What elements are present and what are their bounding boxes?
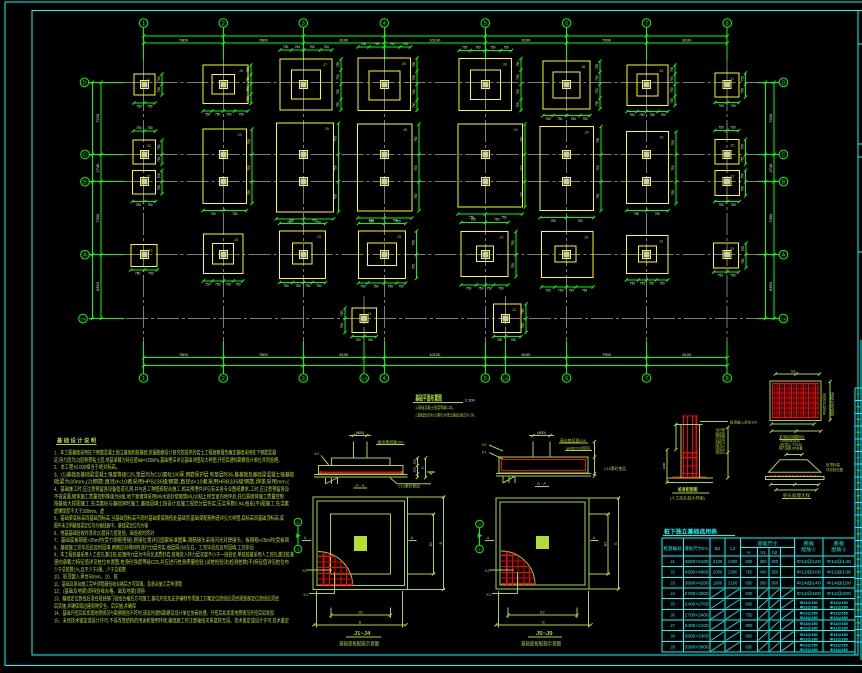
- svg-text:750: 750: [283, 45, 289, 49]
- svg-text:B: B: [83, 180, 87, 186]
- svg-text:图中未注明基础梁定位均为轴线居中。基础梁定位均为轴: 图中未注明基础梁定位均为轴线居中。基础梁定位均为轴: [54, 522, 148, 530]
- svg-text:J8: J8: [670, 634, 675, 639]
- svg-text:C: C: [83, 152, 87, 158]
- svg-text:750: 750: [336, 62, 340, 68]
- svg-text:J4: J4: [670, 591, 675, 596]
- svg-text:750: 750: [501, 216, 507, 220]
- svg-text:750: 750: [414, 136, 418, 142]
- svg-text:750: 750: [136, 126, 142, 130]
- svg-text:750: 750: [157, 144, 161, 150]
- svg-text:B2: B2: [540, 611, 544, 615]
- svg-text:750: 750: [730, 104, 736, 108]
- svg-text:750: 750: [745, 570, 753, 575]
- svg-text:750: 750: [340, 310, 344, 316]
- svg-text:11、基础及承台施工完毕须隐蔽验收合格后方可回填。及承台施工: 11、基础及承台施工完毕须隐蔽验收合格后方可回填。及承台施工完毕须隐: [54, 580, 182, 588]
- svg-text:750: 750: [516, 74, 520, 80]
- svg-text:750: 750: [389, 42, 395, 46]
- svg-text:(600): (600): [356, 431, 364, 435]
- svg-text:750: 750: [466, 287, 472, 291]
- svg-text:750: 750: [596, 193, 600, 199]
- svg-text:750: 750: [582, 117, 588, 121]
- svg-text:3、(1)基础及基础梁混凝土强度等级C25,垫层均为C10素: 3、(1)基础及基础梁混凝土强度等级C25,垫层均为C10素砼100厚,钢筋保护…: [54, 470, 294, 478]
- svg-text:750: 750: [516, 89, 520, 95]
- svg-text:750: 750: [557, 117, 563, 121]
- svg-text:4: 4: [383, 21, 386, 27]
- svg-text:钢筋网片两层: 钢筋网片两层: [830, 391, 835, 416]
- svg-text:3600×4200: 3600×4200: [685, 580, 710, 585]
- svg-text:D: D: [83, 80, 87, 86]
- svg-text:8100: 8100: [339, 38, 349, 43]
- svg-text:750: 750: [745, 612, 753, 617]
- svg-text:750: 750: [324, 45, 330, 49]
- svg-text:B2: B2: [715, 546, 721, 551]
- svg-text:750: 750: [205, 113, 211, 117]
- svg-text:750: 750: [660, 113, 666, 117]
- svg-text:400: 400: [760, 570, 768, 575]
- svg-text:C10素砼垫层: C10素砼垫层: [398, 483, 420, 488]
- svg-text:J1~J4: J1~J4: [354, 631, 371, 637]
- svg-text:2、本工程±0.000相当于绝对标高。: 2、本工程±0.000相当于绝对标高。: [54, 463, 120, 471]
- svg-text:750: 750: [247, 190, 251, 196]
- svg-text:K1: K1: [482, 451, 487, 455]
- svg-text:7: 7: [645, 376, 648, 382]
- svg-text:750: 750: [595, 75, 599, 81]
- svg-text:650: 650: [745, 580, 753, 585]
- svg-text:J7: J7: [670, 623, 675, 628]
- svg-text:Φ12@180: Φ12@180: [830, 647, 848, 652]
- svg-text:750: 750: [670, 76, 674, 82]
- svg-text:750: 750: [741, 258, 745, 264]
- svg-text:750: 750: [511, 240, 515, 246]
- svg-text:350: 350: [771, 570, 779, 575]
- svg-text:φ8@200双向: φ8@200双向: [566, 445, 590, 450]
- svg-text:750: 750: [595, 64, 599, 70]
- svg-text:网片间距100布置: 网片间距100布置: [779, 446, 803, 451]
- svg-text:750: 750: [283, 284, 289, 288]
- svg-text:K1: K1: [487, 593, 492, 597]
- svg-text:8100: 8100: [521, 38, 531, 43]
- svg-text:750: 750: [521, 308, 525, 314]
- svg-text:A: A: [411, 536, 414, 540]
- svg-text:13、基础定位放线后须经规划部门验线合格后方可施工,基坑开挖: 13、基础定位放线后须经规划部门验线合格后方可施工,基坑开挖及支护编制专项施工方…: [54, 595, 279, 603]
- svg-text:7800: 7800: [259, 38, 269, 43]
- svg-text:750: 750: [595, 88, 599, 94]
- svg-text:750: 750: [334, 194, 338, 200]
- svg-text:750: 750: [388, 285, 394, 289]
- svg-text:750: 750: [246, 77, 250, 83]
- svg-text:750: 750: [730, 126, 736, 130]
- svg-text:2100: 2100: [713, 559, 723, 564]
- svg-text:2740: 2740: [768, 163, 773, 173]
- svg-text:750: 750: [246, 67, 250, 73]
- svg-text:650: 650: [745, 644, 753, 649]
- svg-text:750: 750: [478, 287, 484, 291]
- svg-text:不得遗漏,砌体施工质量控制等级为B级,地下室墙体采用M5水泥: 不得遗漏,砌体施工质量控制等级为B级,地下室墙体采用M5水泥砂浆砌筑MU10粘土…: [54, 492, 284, 500]
- svg-text:750: 750: [135, 272, 141, 276]
- svg-text:750: 750: [355, 338, 361, 342]
- svg-text:750: 750: [470, 218, 476, 222]
- svg-text:14、基础开挖后如发现地质情况与勘察报告不符时,请及时通知勘: 14、基础开挖后如发现地质情况与勘察报告不符时,请及时通知勘察及设计单位协商处理…: [54, 609, 274, 617]
- svg-text:2: 2: [222, 376, 225, 382]
- svg-text:750: 750: [577, 219, 583, 223]
- svg-text:K2: K2: [485, 569, 490, 573]
- svg-text:桩基编号: 桩基编号: [664, 545, 682, 552]
- svg-text:B2: B2: [429, 542, 433, 546]
- svg-text:750: 750: [630, 282, 636, 286]
- svg-text:5、基础梁底标高同基础顶标高,当基础顶标高不同时基础梁底随低: 5、基础梁底标高同基础顶标高,当基础顶标高不同时基础梁底随低处基础顶,基础梁配筋…: [54, 514, 284, 522]
- svg-text:750: 750: [520, 165, 524, 171]
- svg-text:300: 300: [771, 559, 779, 564]
- svg-text:15、未经技术鉴定或设计许可,不得改变结构的用途和使用环境,: 15、未经技术鉴定或设计许可,不得改变结构的用途和使用环境,基础施工时注意轴线关…: [54, 616, 289, 624]
- svg-text:配筋①: 配筋①: [801, 546, 816, 553]
- svg-text:750: 750: [148, 272, 154, 276]
- svg-text:750: 750: [639, 113, 645, 117]
- svg-text:D: D: [478, 523, 481, 527]
- svg-text:底板: 底板: [833, 540, 844, 547]
- svg-text:础梁为30mm,(2)钢筋:直径d<10者采用HPB235级: 础梁为30mm,(2)钢筋:直径d<10者采用HPB235级钢筋,直径d>10者…: [54, 478, 289, 486]
- svg-text:750: 750: [670, 67, 674, 73]
- svg-text:750: 750: [247, 139, 251, 145]
- svg-text:750: 750: [157, 173, 161, 179]
- svg-text:Φ12@180: Φ12@180: [800, 615, 818, 620]
- svg-text:750: 750: [246, 96, 250, 102]
- svg-text:750: 750: [634, 212, 640, 216]
- svg-text:750: 750: [334, 165, 338, 171]
- svg-text:10100: 10100: [429, 38, 441, 43]
- svg-text:250: 250: [412, 467, 416, 472]
- svg-text:750: 750: [412, 75, 416, 81]
- svg-text:750: 750: [596, 165, 600, 171]
- svg-text:750: 750: [475, 46, 481, 50]
- svg-text:750: 750: [520, 192, 524, 198]
- svg-text:750: 750: [334, 136, 338, 142]
- svg-text:750: 750: [361, 42, 367, 46]
- svg-text:750: 750: [596, 138, 600, 144]
- svg-text:2400: 2400: [728, 559, 738, 564]
- svg-text:750: 750: [412, 62, 416, 68]
- svg-text:750: 750: [741, 173, 745, 179]
- svg-text:750: 750: [147, 126, 153, 130]
- svg-text:6: 6: [565, 21, 568, 27]
- svg-text:6390: 6390: [95, 281, 100, 291]
- svg-text:750: 750: [595, 101, 599, 107]
- svg-text:750: 750: [545, 117, 551, 121]
- svg-text:750: 750: [412, 89, 416, 95]
- svg-text:2100: 2100: [728, 580, 738, 585]
- svg-text:750: 750: [239, 113, 245, 117]
- svg-text:B2: B2: [358, 611, 362, 615]
- svg-text:750: 750: [730, 274, 736, 278]
- svg-text:750: 750: [336, 89, 340, 95]
- svg-text:1800: 1800: [713, 580, 723, 585]
- svg-text:5: 5: [484, 376, 487, 382]
- svg-text:2000: 2000: [713, 570, 723, 575]
- svg-text:750: 750: [369, 219, 375, 223]
- svg-text:750: 750: [718, 126, 724, 130]
- svg-text:h1: h1: [761, 550, 767, 555]
- svg-text:D: D: [297, 521, 300, 525]
- svg-text:Φ14@150: Φ14@150: [827, 580, 852, 585]
- svg-text:1/5: 1/5: [503, 376, 509, 381]
- svg-text:3600×3300: 3600×3300: [685, 634, 710, 639]
- svg-text:桩顶嵌入承台100: 桩顶嵌入承台100: [730, 419, 757, 424]
- svg-text:A: A: [782, 253, 786, 259]
- svg-text:750: 750: [511, 338, 517, 342]
- svg-text:2700×2400: 2700×2400: [685, 612, 710, 617]
- svg-text:750: 750: [157, 185, 161, 191]
- svg-text:Φ12@180: Φ12@180: [830, 626, 848, 631]
- svg-text:750: 750: [462, 46, 468, 50]
- svg-text:750: 750: [516, 102, 520, 108]
- svg-text:2.基础垫层均为C10素砼100厚,出基础边每边50-100: 2.基础垫层均为C10素砼100厚,出基础边每边50-100。: [415, 411, 476, 418]
- svg-text:8100: 8100: [682, 38, 692, 43]
- svg-text:750: 750: [551, 219, 557, 223]
- svg-text:1: 1: [142, 376, 145, 382]
- svg-text:10、桩顶嵌入承台50mm。10、桩: 10、桩顶嵌入承台50mm。10、桩: [54, 573, 118, 581]
- svg-text:K2: K2: [482, 443, 487, 447]
- svg-text:300: 300: [412, 459, 416, 464]
- svg-text:8: 8: [726, 21, 729, 27]
- svg-text:750: 750: [520, 136, 524, 142]
- svg-text:750: 750: [412, 240, 416, 246]
- svg-text:750: 750: [487, 287, 493, 291]
- svg-text:J9: J9: [670, 644, 675, 649]
- svg-text:750: 750: [671, 140, 675, 146]
- svg-text:4: 4: [383, 376, 386, 382]
- svg-text:8100: 8100: [682, 352, 692, 357]
- svg-text:900: 900: [745, 623, 753, 628]
- svg-text:650: 650: [745, 559, 753, 564]
- svg-text:B: B: [782, 180, 786, 186]
- svg-text:8、基础施工完毕后应及时回填,两侧应对称同时进行分层夯实,每: 8、基础施工完毕后应及时回填,两侧应对称同时进行分层夯实,每层厚250左右。工完…: [54, 543, 254, 551]
- svg-text:A - A: A - A: [537, 481, 546, 486]
- svg-text:650: 650: [745, 602, 753, 607]
- svg-text:750: 750: [398, 285, 404, 289]
- svg-text:J3: J3: [670, 580, 675, 585]
- svg-text:750: 750: [235, 283, 241, 287]
- svg-text:1200: 1200: [662, 462, 666, 469]
- svg-text:A: A: [304, 536, 307, 540]
- svg-text:1: 1: [142, 21, 145, 27]
- svg-text:H: H: [747, 550, 750, 555]
- svg-text:Φ12@140: Φ12@140: [827, 559, 852, 564]
- svg-text:高出垫层面100: 高出垫层面100: [560, 438, 586, 443]
- svg-text:1:100: 1:100: [465, 398, 476, 403]
- svg-text:基础底板配筋示意图: 基础底板配筋示意图: [339, 640, 379, 647]
- svg-text:1/A: 1/A: [80, 318, 86, 322]
- svg-text:Φ12@180: Φ12@180: [800, 626, 818, 631]
- svg-text:750: 750: [157, 87, 161, 93]
- svg-text:750: 750: [503, 46, 509, 50]
- svg-text:8100: 8100: [339, 352, 349, 357]
- svg-text:750: 750: [649, 282, 655, 286]
- svg-text:750: 750: [137, 105, 143, 109]
- svg-text:750: 750: [226, 113, 232, 117]
- svg-text:750: 750: [360, 285, 366, 289]
- svg-text:4200×4800: 4200×4800: [685, 570, 710, 575]
- svg-text:Φ12@180: Φ12@180: [800, 647, 818, 652]
- svg-text:底板尺寸B×L: 底板尺寸B×L: [685, 545, 709, 552]
- svg-text:桩头处理大样: 桩头处理大样: [783, 492, 811, 499]
- svg-text:Φ12@180: Φ12@180: [830, 615, 848, 620]
- svg-text:3300×3600: 3300×3600: [685, 644, 710, 649]
- svg-text:750: 750: [741, 246, 745, 252]
- svg-text:5: 5: [484, 21, 487, 27]
- svg-text:后实施,并确保周边建筑物安全。后实施,并确保: 后实施,并确保周边建筑物安全。后实施,并确保: [54, 602, 136, 610]
- svg-text:8100: 8100: [521, 352, 531, 357]
- svg-text:4: 4: [297, 548, 299, 552]
- svg-text:750: 750: [414, 193, 418, 199]
- svg-text:750: 750: [640, 282, 646, 286]
- svg-text:基础平面布置图: 基础平面布置图: [415, 392, 442, 402]
- svg-text:750: 750: [569, 289, 575, 293]
- svg-text:750: 750: [336, 74, 340, 80]
- svg-text:750: 750: [741, 186, 745, 192]
- svg-text:7200: 7200: [768, 113, 773, 123]
- svg-text:C10素砼垫层: C10素砼垫层: [604, 466, 626, 471]
- svg-text:基 础 设 计 说 明: 基 础 设 计 说 明: [56, 436, 96, 444]
- svg-text:2: 2: [222, 21, 225, 27]
- svg-text:750: 750: [629, 113, 635, 117]
- svg-text:A: A: [487, 536, 490, 540]
- svg-text:1/3: 1/3: [361, 376, 367, 381]
- svg-text:3: 3: [302, 376, 305, 382]
- svg-text:750: 750: [295, 284, 301, 288]
- svg-text:K2: K2: [315, 452, 320, 456]
- svg-text:750: 750: [582, 289, 588, 293]
- svg-text:J1: J1: [670, 559, 675, 564]
- svg-text:Φ12@180: Φ12@180: [800, 604, 818, 609]
- svg-text:定,持力层为(2)层粉质粘土层,地基承载力特征值fak=15: 定,持力层为(2)层粉质粘土层,地基承载力特征值fak=155kPa,基础埋深详…: [54, 456, 282, 464]
- svg-text:750: 750: [655, 212, 661, 216]
- svg-text:750: 750: [659, 282, 665, 286]
- svg-text:H: H: [421, 466, 425, 469]
- svg-text:750: 750: [147, 203, 153, 207]
- svg-text:600: 600: [745, 591, 753, 596]
- svg-text:750: 750: [215, 113, 221, 117]
- svg-text:2400×2100: 2400×2100: [685, 623, 710, 628]
- svg-text:7300: 7300: [95, 213, 100, 223]
- svg-text:桩顶标高: 桩顶标高: [826, 462, 840, 467]
- svg-text:7800: 7800: [179, 352, 189, 357]
- svg-text:7800: 7800: [179, 38, 189, 43]
- svg-text:750: 750: [312, 219, 318, 223]
- svg-text:4: 4: [478, 548, 480, 552]
- svg-text:6、地基基础验收时须对(2)层持力层复验。础验收时须对: 6、地基基础验收时须对(2)层持力层复验。础验收时须对: [54, 529, 154, 537]
- svg-text:D: D: [782, 80, 786, 86]
- svg-text:750: 750: [210, 212, 216, 216]
- svg-text:4500×5100: 4500×5100: [685, 559, 710, 564]
- svg-text:虚铺厚度不大于300mm。虚: 虚铺厚度不大于300mm。虚: [54, 507, 104, 515]
- svg-text:750: 750: [671, 190, 675, 196]
- svg-text:750: 750: [316, 284, 322, 288]
- svg-text:750: 750: [309, 45, 315, 49]
- svg-text:8: 8: [726, 376, 729, 382]
- svg-text:配筋②: 配筋②: [831, 546, 846, 553]
- svg-text:750: 750: [521, 323, 525, 329]
- svg-text:K1: K1: [304, 593, 309, 597]
- svg-text:7300: 7300: [768, 213, 773, 223]
- svg-text:750: 750: [670, 87, 674, 93]
- svg-text:750: 750: [157, 156, 161, 162]
- svg-text:300: 300: [771, 580, 779, 585]
- svg-text:6390: 6390: [768, 281, 773, 291]
- svg-text:Φ12@160: Φ12@160: [797, 591, 822, 596]
- svg-text:J2: J2: [670, 570, 675, 575]
- svg-text:750: 750: [571, 117, 577, 121]
- svg-text:750: 750: [157, 76, 161, 82]
- svg-text:850: 850: [745, 634, 753, 639]
- svg-text:A - A: A - A: [356, 483, 365, 488]
- svg-text:A: A: [83, 253, 87, 259]
- svg-text:750: 750: [670, 98, 674, 104]
- svg-text:B2: B2: [604, 542, 608, 546]
- svg-text:h2: h2: [772, 550, 778, 555]
- svg-text:7200: 7200: [95, 113, 100, 123]
- svg-text:350: 350: [760, 559, 768, 564]
- svg-text:750: 750: [392, 219, 398, 223]
- svg-text:2740: 2740: [95, 163, 100, 173]
- svg-text:按基础大样图施工,先浇素砼与基础同时施工,基础回填土按设计及: 按基础大样图施工,先浇素砼与基础同时施工,基础回填土按设计及施工规范分层夯实,压…: [54, 500, 289, 508]
- svg-text:桩身配筋图: 桩身配筋图: [678, 486, 698, 493]
- svg-text:750: 750: [741, 88, 745, 94]
- svg-text:K2: K2: [303, 569, 308, 573]
- svg-text:2700×3000: 2700×3000: [685, 591, 710, 596]
- svg-text:750: 750: [136, 203, 142, 207]
- svg-text:底板: 底板: [803, 540, 814, 547]
- svg-text:750: 750: [741, 144, 745, 150]
- svg-text:(600): (600): [537, 431, 545, 435]
- svg-text:少于总桩数1%,且不少于3根。少于总桩数: 少于总桩数1%,且不少于3根。少于总桩数: [54, 565, 126, 573]
- svg-text:750: 750: [340, 323, 344, 329]
- svg-text:4、基础施工时,应注意预留各设备管道孔洞,并与各工种图纸配合: 4、基础施工时,应注意预留各设备管道孔洞,并与各工种图纸配合施工,相关预埋件详见…: [54, 485, 289, 493]
- svg-text:750: 750: [147, 105, 153, 109]
- svg-text:7: 7: [645, 21, 648, 27]
- svg-text:Φ12@180: Φ12@180: [830, 604, 848, 609]
- svg-text:环筋Φ6@250: 环筋Φ6@250: [716, 450, 726, 455]
- svg-text:750: 750: [558, 289, 564, 293]
- svg-text:750: 750: [497, 338, 503, 342]
- svg-text:750: 750: [373, 285, 379, 289]
- svg-text:750: 750: [226, 283, 232, 287]
- svg-text:750: 750: [718, 274, 724, 278]
- svg-text:750: 750: [718, 104, 724, 108]
- svg-text:750: 750: [403, 42, 409, 46]
- svg-text:750: 750: [414, 165, 418, 171]
- svg-text:J5: J5: [670, 602, 675, 607]
- svg-text:Φ12@180: Φ12@180: [830, 636, 848, 641]
- svg-text:Φ12@130: Φ12@130: [827, 570, 852, 575]
- svg-text:300: 300: [760, 580, 768, 585]
- svg-text:750: 750: [247, 165, 251, 171]
- svg-text:750: 750: [511, 263, 515, 269]
- svg-text:750: 750: [516, 61, 520, 67]
- svg-text:12、(基础及地梁)须待验收合格。础及地梁)须待: 12、(基础及地梁)须待验收合格。础及地梁)须待: [54, 587, 145, 595]
- svg-text:750: 750: [741, 156, 745, 162]
- svg-text:750: 750: [490, 46, 496, 50]
- svg-text:750: 750: [545, 289, 551, 293]
- svg-text:750: 750: [205, 283, 211, 287]
- svg-text:Φ12@200: Φ12@200: [827, 591, 852, 596]
- svg-text:750: 750: [368, 338, 374, 342]
- svg-text:基础底板配筋示意图: 基础底板配筋示意图: [521, 640, 561, 647]
- svg-text:桩下独立基础选用表: 桩下独立基础选用表: [664, 528, 717, 536]
- svg-text:A: A: [593, 536, 596, 540]
- svg-text:750: 750: [412, 102, 416, 108]
- svg-text:9、本工程桩基采用人工挖孔灌注桩,桩端持力层为中风化泥质砂岩: 9、本工程桩基采用人工挖孔灌注桩,桩端持力层为中风化泥质砂岩,桩端进入持力层深度…: [54, 551, 294, 559]
- svg-text:J6: J6: [670, 612, 675, 617]
- svg-text:750: 750: [215, 283, 221, 287]
